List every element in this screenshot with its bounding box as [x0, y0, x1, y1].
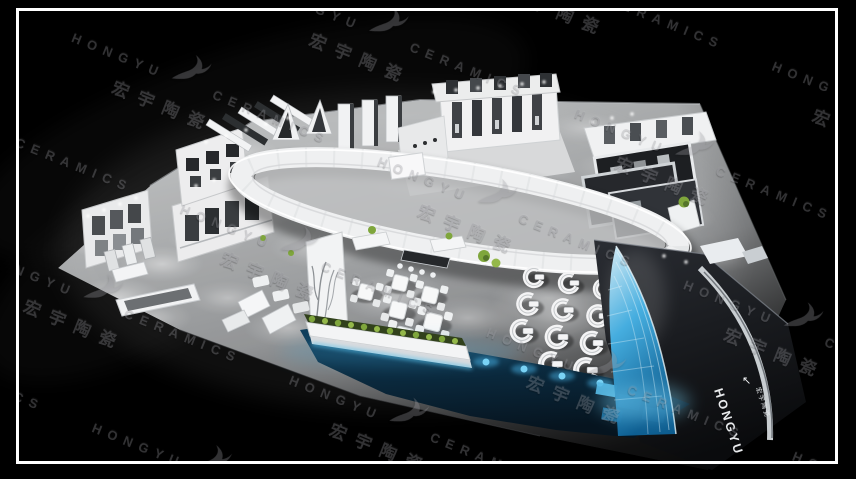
ring-doorway [389, 153, 426, 180]
sign-direction-arrow-icon: ↖ [742, 375, 751, 387]
standing-door-panels [338, 96, 402, 150]
render-canvas: HONGYU ↖ 宏宇陶瓷 HONGYU CERAMICS 宏宇陶瓷 HONGY [0, 0, 856, 479]
booth-scene: HONGYU ↖ 宏宇陶瓷 [0, 0, 856, 479]
